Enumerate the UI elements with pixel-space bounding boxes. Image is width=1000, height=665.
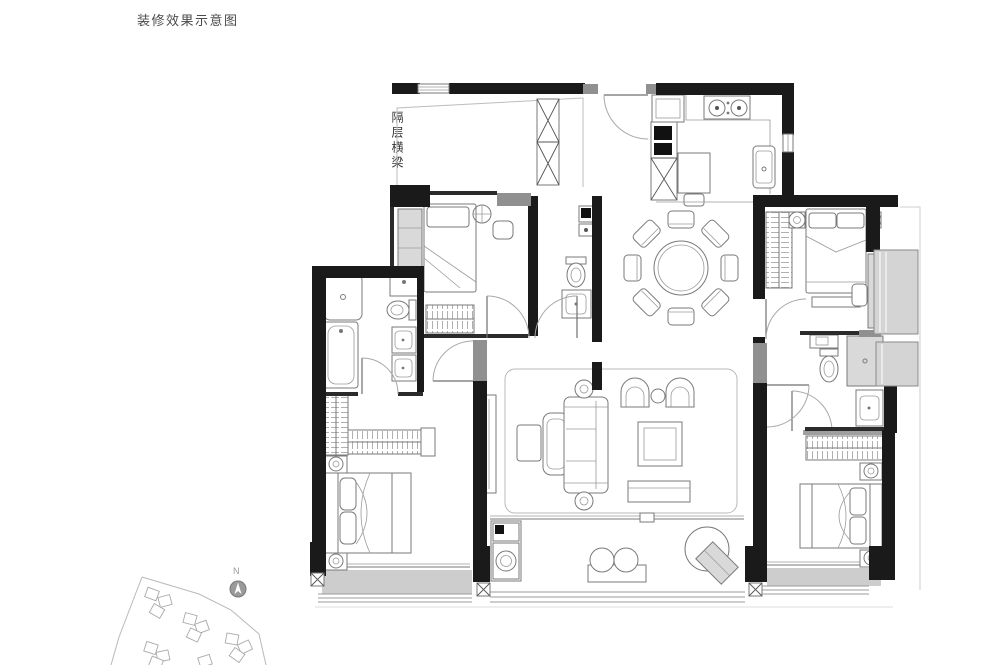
laundry-unit [491,521,521,581]
toilet [387,300,416,320]
vanity-sink [856,390,883,426]
single-bed [424,204,476,292]
tv-panel [486,395,496,493]
kitchen-chair [684,194,704,206]
planter [588,548,646,582]
floor-lamp [575,492,593,510]
media-bench [628,481,690,502]
toilet [566,257,586,287]
kitchen-sink [753,146,775,188]
site-plan-sketch [111,577,266,665]
site-buildings [144,587,253,665]
double-bed [806,209,866,293]
desk-chair [852,284,867,306]
bathroom-master [324,272,418,388]
coffee-table [638,422,682,466]
bay-window-upper [874,250,918,334]
bay-window-lower [876,342,918,386]
double-bed [800,484,882,548]
double-bed [325,473,411,553]
kitchen [651,95,780,206]
double-vanity [392,327,416,381]
compass-icon [230,581,246,597]
balcony-center [491,521,738,584]
bathtub [324,322,358,388]
toilet [820,349,838,382]
floor-lamp [575,380,593,398]
shower-tray [324,274,362,320]
stove [704,96,750,119]
outdoor-set [685,527,738,584]
stool [493,221,513,239]
cabinet [398,209,422,267]
window-top [418,84,449,93]
ottoman [517,425,541,461]
bathroom-guest [562,206,594,318]
balcony-center-railing [490,592,745,602]
armchair [666,378,694,407]
dining-area [624,211,738,325]
armchair [621,378,649,407]
floor-plan-page: 装修效果示意图 隔层横梁 N [0,0,1000,665]
floor-plan-drawing [0,0,1000,665]
window-kitchen [783,134,793,152]
entry-foyer [537,95,648,185]
dining-table [654,241,708,295]
living-room [486,369,744,522]
side-table [651,389,665,403]
bathroom-right [792,335,883,431]
kitchen-island [678,153,710,193]
sofa [564,397,608,493]
